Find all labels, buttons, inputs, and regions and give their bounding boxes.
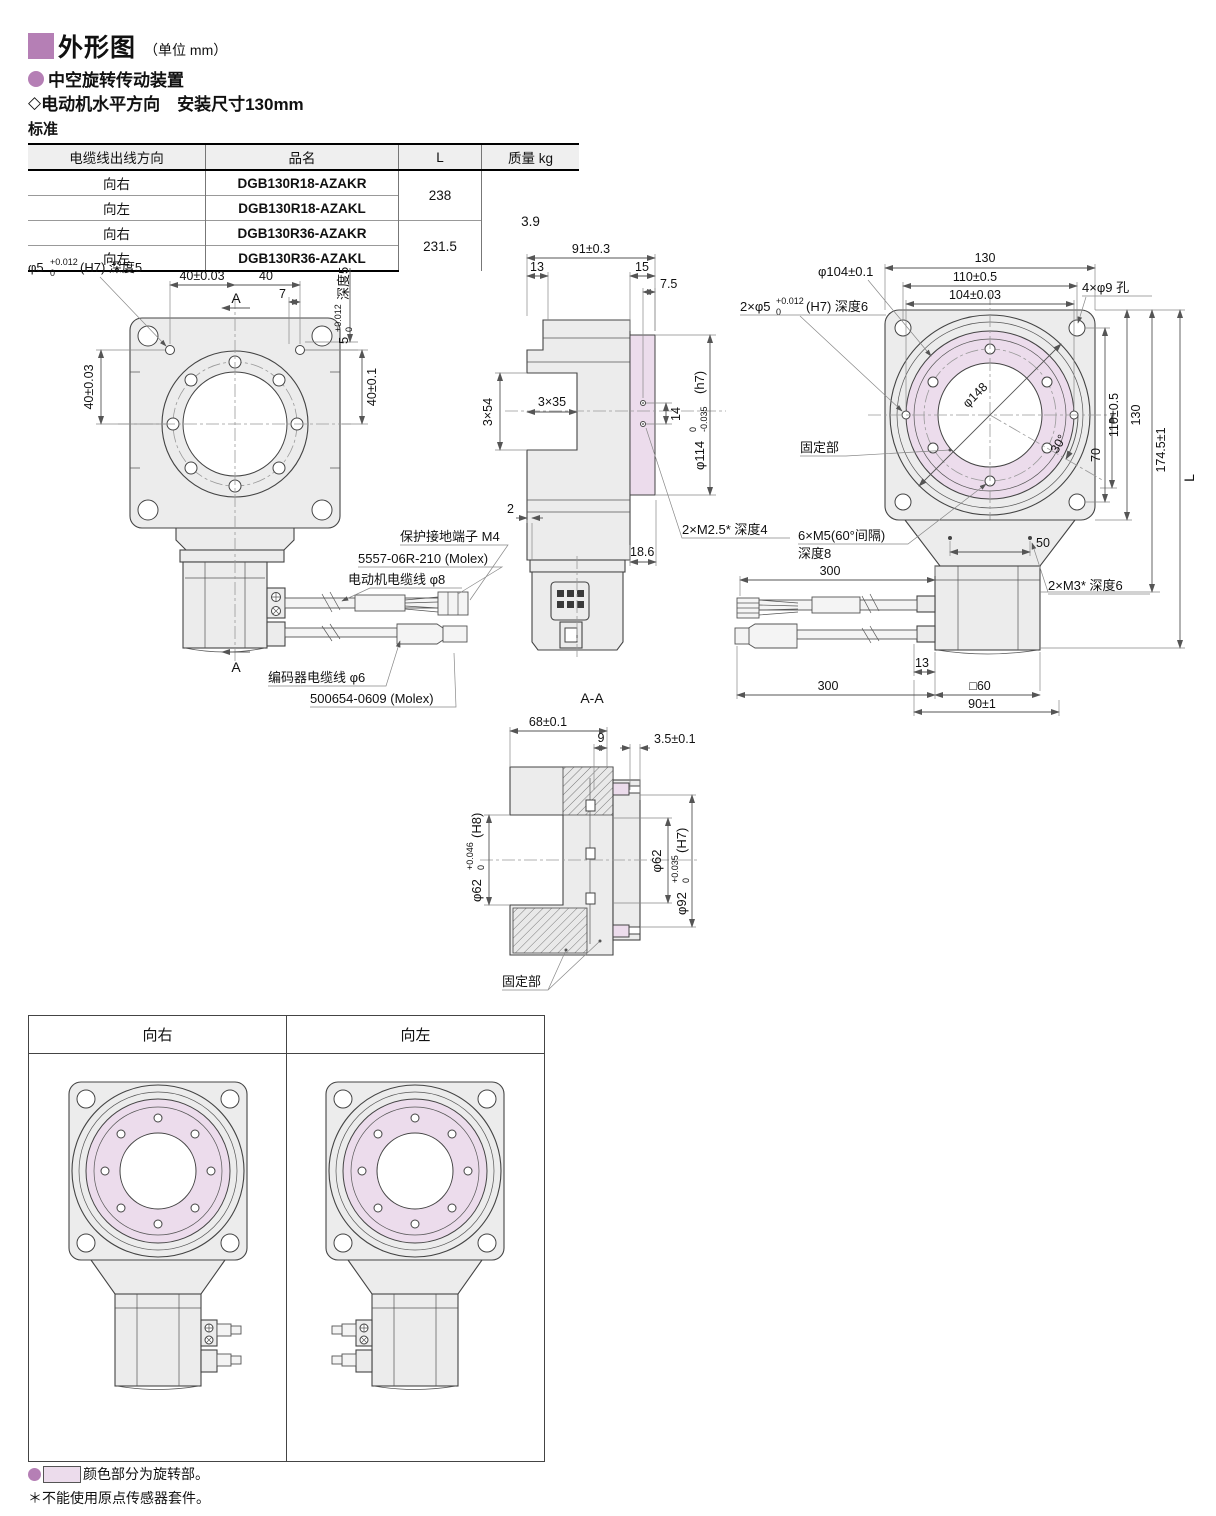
- dim-3x54: 3×54: [481, 398, 495, 426]
- dim-18-6: 18.6: [630, 545, 654, 559]
- svg-text:φ5: φ5: [28, 260, 44, 275]
- fixed-part-hatch-bottom: [513, 908, 587, 953]
- svg-text:0: 0: [344, 327, 354, 332]
- dim-110-top: 110±0.5: [953, 270, 997, 284]
- orientation-header-left: 向左: [287, 1016, 544, 1053]
- svg-text:φ114: φ114: [692, 441, 707, 470]
- dim-40-vert-right: 40±0.1: [365, 368, 379, 406]
- dim-2: 2: [507, 502, 514, 516]
- locating-pin-hole: [166, 346, 175, 355]
- svg-text:(H7) 深度5: (H7) 深度5: [80, 260, 142, 275]
- catalog-page: 外形图 （单位 mm） 中空旋转传动装置 ◇ 电动机水平方向 安装尺寸130mm…: [0, 0, 1216, 1516]
- rotating-part-color-swatch: [43, 1466, 81, 1483]
- dim-L: L: [1181, 474, 1197, 482]
- svg-text:(H8): (H8): [469, 813, 484, 838]
- dim-3x35: 3×35: [538, 395, 566, 409]
- dim-130-top: 130: [975, 251, 996, 265]
- svg-text:5: 5: [336, 337, 351, 344]
- motor-cable-label: 电动机电缆线 φ8: [348, 572, 445, 587]
- dim-pin-depth-vertical: 5 +0.012 0 深度5: [333, 267, 354, 344]
- section-mark-a-top: A: [231, 290, 241, 306]
- dim-40-003: 40±0.03: [179, 269, 224, 283]
- svg-text:深度5: 深度5: [336, 267, 351, 300]
- dim-90: 90±1: [968, 697, 996, 711]
- svg-text:2×φ5: 2×φ5: [740, 299, 770, 314]
- m5-depth-label: 深度8: [798, 546, 831, 561]
- dim-9: 9: [598, 731, 605, 745]
- legend-note: 颜色部分为旋转部。: [28, 1464, 209, 1484]
- svg-text:0: 0: [50, 268, 55, 278]
- dim-phi62-left: φ62 +0.046 0 (H8): [465, 813, 486, 902]
- encoder-cable-left: [735, 624, 917, 648]
- dim-104-top: 104±0.03: [949, 288, 1001, 302]
- section-mark-a-bottom: A: [231, 659, 241, 675]
- svg-text:-0.035: -0.035: [699, 406, 709, 432]
- section-view-aa: A-A 68±0.1 9 3.5±0.1 φ62 +0.046: [465, 690, 700, 990]
- actuator-cables-left: [326, 1082, 504, 1390]
- orientation-cell-right: [29, 1054, 287, 1462]
- dim-phi92: φ92 +0.035 0 (H7): [670, 828, 691, 915]
- dim-68: 68±0.1: [529, 715, 567, 729]
- svg-text:(H7): (H7): [674, 828, 689, 853]
- svg-text:+0.012: +0.012: [776, 296, 804, 306]
- svg-text:(h7): (h7): [692, 371, 707, 394]
- dim-phi114: φ114 0 -0.035 (h7): [688, 371, 709, 470]
- dim-phi104-label: φ104±0.1: [818, 264, 873, 279]
- m25-tap-label: 2×M2.5* 深度4: [682, 522, 768, 537]
- molex-connector-label2: 500654-0609 (Molex): [310, 691, 434, 706]
- rotating-flange-pink: [630, 335, 655, 495]
- sensor-note: ＊不能使用原点传感器套件。: [28, 1488, 210, 1508]
- dim-15: 15: [635, 260, 649, 274]
- svg-text:+0.035: +0.035: [670, 855, 680, 883]
- m3-tap-label: 2×M3* 深度6: [1048, 578, 1123, 593]
- svg-text:0: 0: [476, 865, 486, 870]
- dim-110-right: 110±0.5: [1107, 393, 1121, 437]
- dim-phi62-right: φ62: [649, 850, 664, 873]
- dim-13-bottom: 13: [915, 656, 929, 670]
- m5-tap-label: 6×M5(60°间隔): [798, 528, 885, 543]
- motor-body: [183, 562, 267, 648]
- legend-text: 颜色部分为旋转部。: [83, 1464, 209, 1484]
- dim-174-5: 174.5±1: [1154, 427, 1168, 472]
- ground-terminal-label: 保护接地端子 M4: [400, 529, 500, 544]
- corner-holes-label: 4×φ9 孔: [1082, 280, 1129, 295]
- actuator-cables-right: [69, 1082, 247, 1390]
- svg-text:0: 0: [688, 427, 698, 432]
- dim-70: 70: [1089, 448, 1103, 462]
- svg-text:+0.046: +0.046: [465, 842, 475, 870]
- dimension-drawings: 40±0.03 40 7 φ5 +0.012 0 (H7) 深度5 A A 5 …: [0, 0, 1216, 1010]
- svg-text:φ92: φ92: [674, 892, 689, 915]
- encoder-cable-label: 编码器电缆线 φ6: [268, 670, 365, 685]
- orientation-cell-left: [287, 1054, 544, 1462]
- encoder-cable: [285, 624, 467, 644]
- fixed-part-label: 固定部: [502, 974, 541, 989]
- svg-text:φ62: φ62: [469, 879, 484, 902]
- dim-7-5: 7.5: [660, 277, 677, 291]
- svg-text:+0.012: +0.012: [333, 304, 343, 332]
- motor-body: [935, 566, 1040, 650]
- motor-cable-left: [737, 597, 917, 618]
- side-body: [527, 320, 630, 560]
- dim-91: 91±0.3: [572, 242, 610, 256]
- orientation-header-right: 向右: [29, 1016, 287, 1053]
- dim-7: 7: [279, 287, 286, 301]
- dim-50: 50: [1036, 536, 1050, 550]
- molex-connector-label: 5557-06R-210 (Molex): [358, 551, 488, 566]
- legend-bullet-icon: [28, 1468, 41, 1481]
- dim-3-5: 3.5±0.1: [654, 732, 696, 746]
- motor-cable: [285, 592, 468, 615]
- svg-text:+0.012: +0.012: [50, 257, 78, 267]
- svg-text:0: 0: [776, 307, 781, 317]
- dim-40-vert-left: 40±0.03: [82, 364, 96, 409]
- pin-holes-label: 2×φ5 +0.012 0 (H7) 深度6: [740, 296, 902, 411]
- dim-40: 40: [259, 269, 273, 283]
- dim-130-right: 130: [1129, 405, 1143, 426]
- svg-text:0: 0: [681, 878, 691, 883]
- svg-text:(H7) 深度6: (H7) 深度6: [806, 299, 868, 314]
- dim-14: 14: [669, 407, 683, 421]
- plan-view: φ148 130: [735, 251, 1197, 716]
- fixed-part-label: 固定部: [800, 440, 839, 455]
- front-view: 40±0.03 40 7 φ5 +0.012 0 (H7) 深度5 A A 5 …: [28, 257, 508, 707]
- locating-pin-hole: [296, 346, 305, 355]
- dim-13: 13: [530, 260, 544, 274]
- orientation-table: 向右 向左: [28, 1015, 545, 1462]
- dim-300-top: 300: [820, 564, 841, 578]
- dim-300-bottom: 300: [818, 679, 839, 693]
- section-title: A-A: [580, 690, 604, 706]
- dim-sq60: □60: [969, 679, 991, 693]
